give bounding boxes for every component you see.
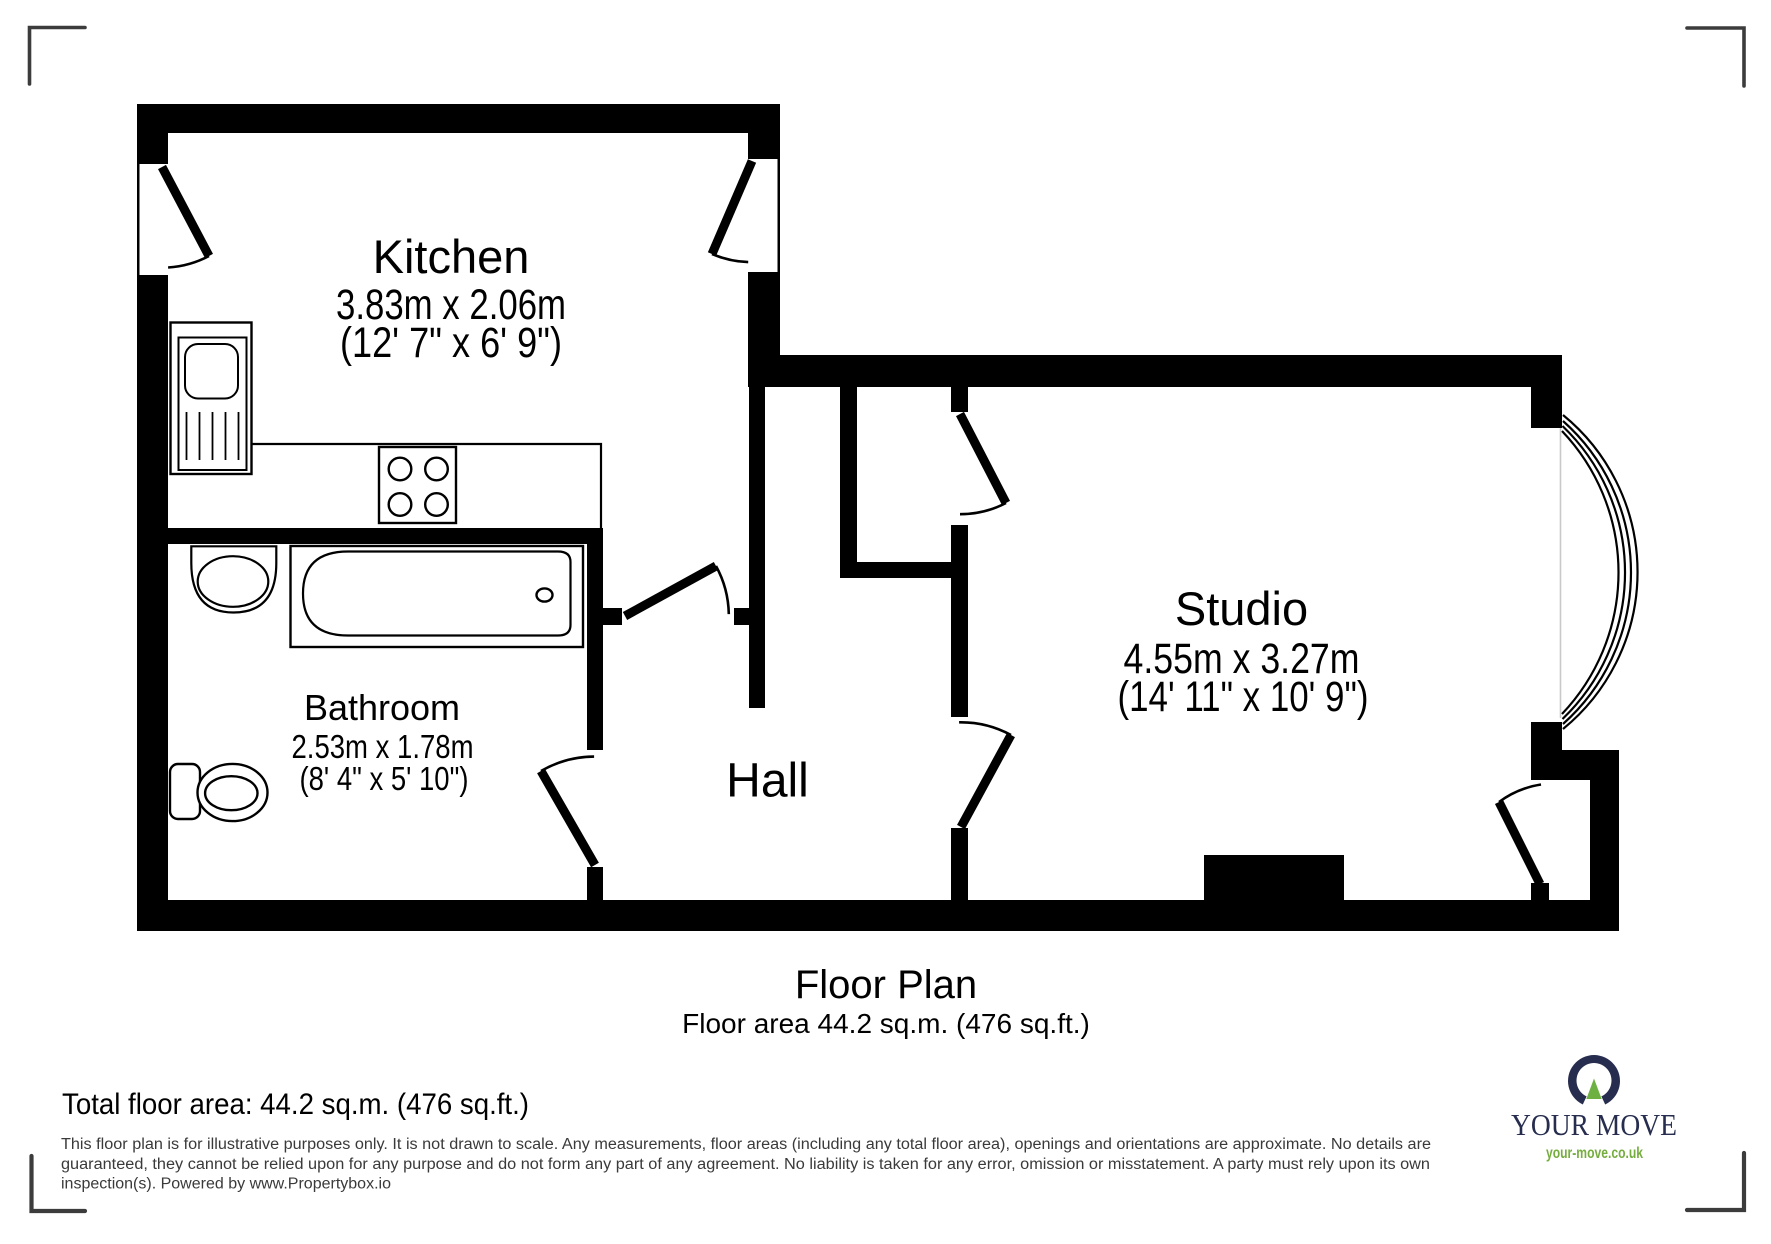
svg-text:Hall: Hall: [726, 755, 809, 808]
svg-text:(12' 7" x 6' 9"): (12' 7" x 6' 9"): [340, 319, 562, 367]
svg-text:YOUR MOVE: YOUR MOVE: [1511, 1107, 1677, 1142]
svg-text:Studio: Studio: [1175, 582, 1308, 635]
svg-text:Kitchen: Kitchen: [373, 230, 530, 283]
svg-text:This floor plan is for illustr: This floor plan is for illustrative purp…: [61, 1136, 1431, 1153]
svg-text:guaranteed, they cannot be rel: guaranteed, they cannot be relied upon f…: [61, 1156, 1430, 1173]
svg-text:your-move.co.uk: your-move.co.uk: [1546, 1145, 1643, 1162]
svg-text:(14' 11" x 10' 9"): (14' 11" x 10' 9"): [1118, 673, 1369, 721]
svg-text:Total floor area: 44.2 sq.m. (: Total floor area: 44.2 sq.m. (476 sq.ft.…: [62, 1088, 529, 1121]
svg-text:Floor area 44.2 sq.m. (476 sq.: Floor area 44.2 sq.m. (476 sq.ft.): [682, 1008, 1090, 1039]
svg-text:Floor Plan: Floor Plan: [795, 963, 977, 1007]
svg-text:Bathroom: Bathroom: [304, 687, 460, 728]
svg-text:(8' 4" x 5' 10"): (8' 4" x 5' 10"): [300, 760, 469, 797]
svg-text:inspection(s). Powered by www.: inspection(s). Powered by www.Propertybo…: [61, 1176, 391, 1193]
